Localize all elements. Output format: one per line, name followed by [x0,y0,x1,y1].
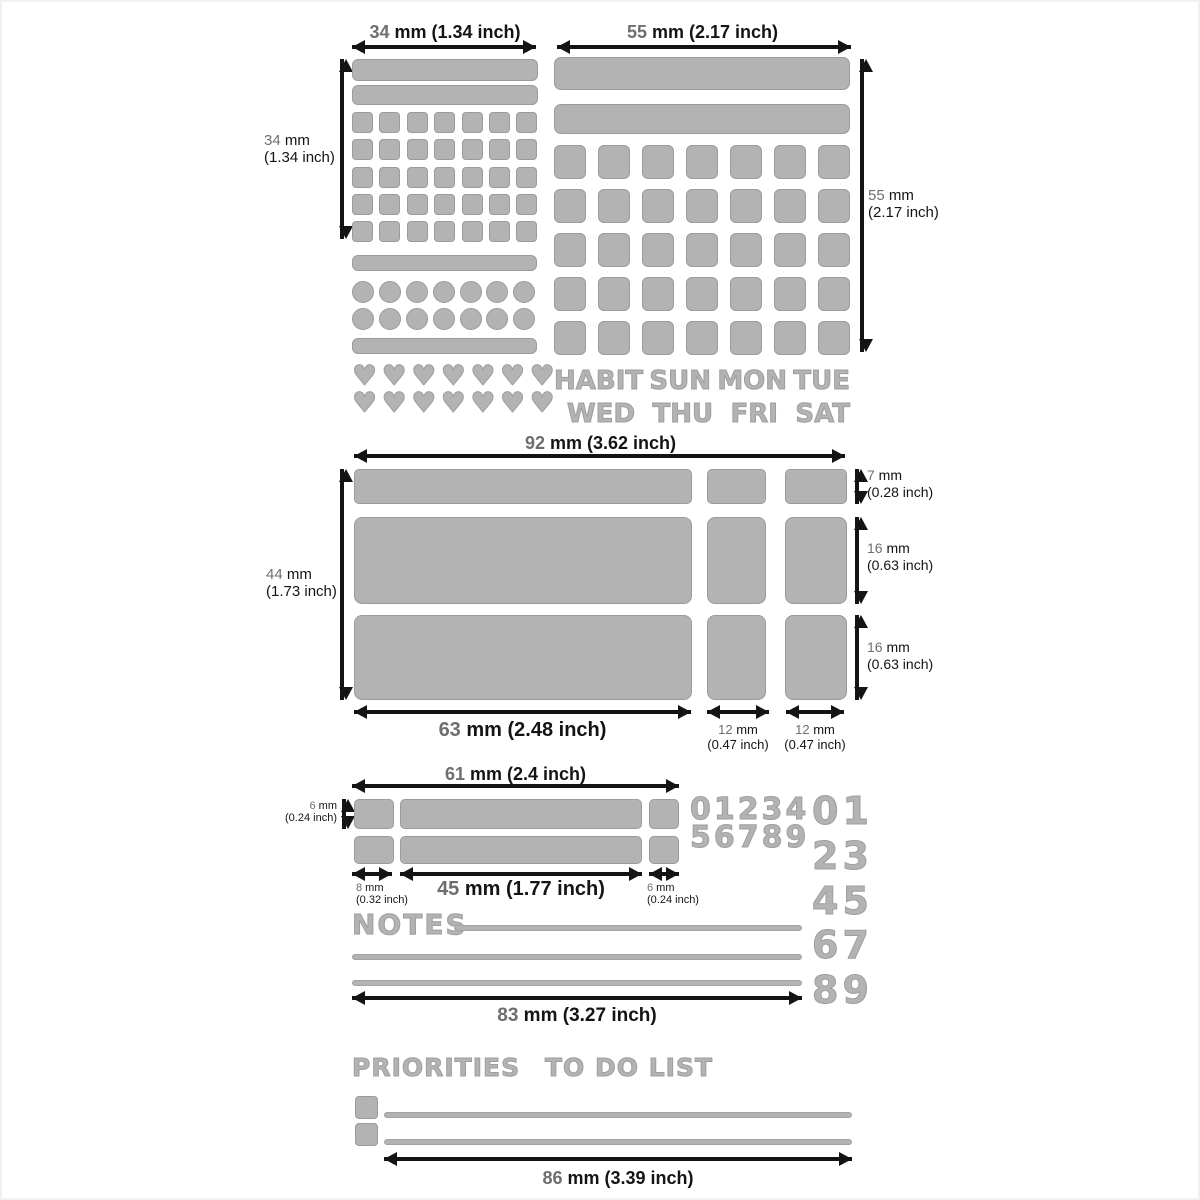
square-sticker [730,233,762,267]
heart-sticker-row: ♥♥♥♥♥♥♥ [352,389,538,416]
square-sticker [379,221,400,242]
dim-value: 34 [264,132,281,149]
square-sticker [407,194,428,215]
square-sticker [407,221,428,242]
dim-label-topleft-height: 34 mm (1.34 inch) [264,133,335,166]
square-sticker [642,277,674,311]
circle-sticker [460,281,482,303]
dim-label-83mm: 83 mm (3.27 inch) [352,1005,802,1027]
dim-label-45mm: 45 mm (1.77 inch) [400,878,642,901]
square-sticker [489,194,510,215]
square-sticker [489,167,510,188]
sticker-bar [554,104,850,134]
square-sticker [554,233,586,267]
notes-label: NOTES [352,908,468,941]
digits-row-23: 23 [812,834,873,879]
dim-unit: mm [883,639,910,655]
small-squares-grid [352,112,538,242]
dim-line2: (0.63 inch) [867,557,933,574]
dim-unit: mm (1.34 inch) [389,22,520,42]
dim-unit: mm [362,882,383,894]
wide-sticker-row1 [354,469,692,504]
circle-sticker [460,308,482,330]
dim-value: 61 [445,764,465,784]
square-sticker [407,112,428,133]
dim-label-6mm-right: 6 mm (0.24 inch) [647,882,699,906]
square-sticker [434,112,455,133]
day-labels-row1: HABIT SUN MON TUE [554,368,850,394]
small-sticker-row3-col1 [707,615,766,700]
small-sticker-row2-col2 [785,517,847,604]
width-arrow-45mm [400,872,642,876]
large-number-stickers: 01 23 45 67 89 [812,789,873,1013]
small-sticker-row1-col1 [707,469,766,504]
sticker-bar [554,57,850,90]
topleft-sticker-block: ♥♥♥♥♥♥♥♥♥♥♥♥♥♥ [352,59,538,416]
circle-stickers-grid [352,281,538,330]
square-sticker [774,233,806,267]
circle-sticker [379,281,401,303]
square-sticker [642,321,674,355]
header-bar-row1 [400,799,642,829]
dim-unit: mm [885,187,914,204]
square-sticker [516,194,537,215]
dim-unit: mm [283,566,312,583]
circle-sticker [352,281,374,303]
circle-sticker [352,308,374,330]
dim-value: 44 [266,566,283,583]
dim-line2: (0.63 inch) [867,656,933,673]
square-sticker [598,189,630,223]
dim-value: 34 [369,22,389,42]
planner-sticker-dimensions-diagram: 34 mm (1.34 inch) 34 mm (1.34 inch) ♥♥♥♥… [0,0,1200,1200]
square-sticker [554,321,586,355]
circle-sticker [486,308,508,330]
square-sticker [516,221,537,242]
dim-value: 16 [867,639,883,655]
width-arrow-topright [557,45,851,49]
dim-label-topright-height: 55 mm (2.17 inch) [868,188,939,221]
dim-unit: mm (2.17 inch) [647,22,778,42]
circle-sticker [406,281,428,303]
dim-line2: (0.47 inch) [697,737,779,752]
square-sticker [818,233,850,267]
word-habit: HABIT [554,368,643,394]
heart-stickers: ♥♥♥♥♥♥♥♥♥♥♥♥♥♥ [352,362,538,416]
dim-value: 12 [718,722,732,737]
square-sticker [379,139,400,160]
dim-line2: (1.73 inch) [266,584,337,601]
square-sticker [730,277,762,311]
square-sticker [489,112,510,133]
square-sticker [379,112,400,133]
dim-line2: (0.47 inch) [774,737,856,752]
square-sticker [379,194,400,215]
row2-height-arrow [855,517,859,604]
dim-unit: mm [875,467,902,483]
dim-label-86mm: 86 mm (3.39 inch) [384,1168,852,1189]
digits-row-01: 01 [812,789,873,834]
dim-line1: 34 mm [264,133,335,150]
word-mon: MON [717,368,787,394]
dim-line1: 55 mm [868,188,939,205]
square-sticker [352,139,373,160]
dim-unit: mm (1.77 inch) [459,878,605,900]
word-wed: WED [567,401,635,427]
digits-row-89: 89 [812,968,873,1013]
dim-line2: (2.17 inch) [868,205,939,222]
digits-row-56789: 56789 [690,824,809,852]
square-sticker [730,189,762,223]
square-sticker [730,321,762,355]
square-sticker [516,167,537,188]
square-sticker [774,277,806,311]
dim-unit: mm (3.39 inch) [562,1168,693,1188]
digits-row-67: 67 [812,923,873,968]
dim-label-63mm: 63 mm (2.48 inch) [354,719,691,742]
square-sticker [489,221,510,242]
dim-label-row2: 16 mm (0.63 inch) [867,540,933,573]
circle-sticker [513,281,535,303]
large-squares-grid [554,145,850,355]
todo-line-1 [384,1112,852,1118]
square-sticker [434,194,455,215]
dim-line1: 12 mm [774,722,856,737]
row1-height-arrow [855,469,859,504]
dim-value: 7 [867,467,875,483]
dim-label-topright-width: 55 mm (2.17 inch) [554,22,851,43]
dim-line2: (0.24 inch) [647,894,699,906]
dim-value: 63 [439,719,461,741]
square-sticker [554,145,586,179]
dim-label-middle-width: 92 mm (3.62 inch) [354,433,847,454]
topright-sticker-block: HABIT SUN MON TUE WED THU FRI SAT [554,57,850,427]
small-sticker-row2-col1 [707,517,766,604]
width-arrow-63mm [354,710,691,714]
square-sticker [352,221,373,242]
square-sticker [774,145,806,179]
height-arrow-topright [860,59,864,352]
square-sticker [818,189,850,223]
square-sticker [352,112,373,133]
square-sticker [686,277,718,311]
priorities-label: PRIORITIES [352,1053,520,1082]
square-sticker [516,139,537,160]
square-sticker [642,145,674,179]
square-sticker [352,194,373,215]
digits-row-45: 45 [812,879,873,924]
dim-label-6mm-left: 6 mm (0.24 inch) [257,800,337,824]
square-sticker [462,194,483,215]
dim-line1: 16 mm [867,639,933,656]
day-labels-row2: WED THU FRI SAT [554,401,850,427]
dim-line1: 6 mm [257,800,337,812]
height-arrow-middle [340,469,344,700]
width-arrow-86mm [384,1157,852,1161]
wide-sticker-row2 [354,517,692,604]
dim-value: 16 [867,540,883,556]
header-bar-row2 [400,836,642,864]
square-sticker [598,233,630,267]
circle-sticker [486,281,508,303]
square-sticker [774,321,806,355]
width-arrow-61mm [352,784,679,788]
dim-unit: mm [810,722,835,737]
square-sticker [407,139,428,160]
height-arrow-topleft [340,59,344,239]
square-sticker [489,139,510,160]
wide-sticker-row3 [354,615,692,700]
circle-sticker [433,308,455,330]
note-line [454,925,802,931]
width-arrow-6mm-right [649,872,679,876]
sticker-bar [352,59,538,81]
square-sticker [686,145,718,179]
word-sat: SAT [795,401,850,427]
dim-label-12mm-col2: 12 mm (0.47 inch) [774,722,856,752]
width-arrow-8mm [352,872,392,876]
note-line [352,980,802,986]
header-square-right-row1 [649,799,679,829]
todo-line-2 [384,1139,852,1145]
header-square-left-row1 [354,799,394,829]
dim-label-middle-height: 44 mm (1.73 inch) [266,567,337,600]
width-arrow-12mm-col1 [707,710,769,714]
square-sticker [818,277,850,311]
square-sticker [686,233,718,267]
circle-sticker [433,281,455,303]
square-sticker [598,145,630,179]
square-sticker [818,321,850,355]
square-sticker [434,139,455,160]
dim-line2: (0.28 inch) [867,484,933,501]
square-sticker [774,189,806,223]
dim-unit: mm [883,540,910,556]
square-sticker [462,139,483,160]
small-sticker-row1-col2 [785,469,847,504]
word-thu: THU [652,401,713,427]
dim-value: 55 [868,187,885,204]
circle-sticker [406,308,428,330]
todo-list-label: TO DO LIST [545,1053,713,1082]
dim-line1: 7 mm [867,467,933,484]
width-arrow-middle [354,454,845,458]
dim-value: 83 [497,1005,518,1026]
word-sun: SUN [649,368,711,394]
dim-line2: (1.34 inch) [264,150,335,167]
checkbox-sticker-1 [355,1096,378,1119]
square-sticker [642,233,674,267]
dim-value: 55 [627,22,647,42]
dim-label-row3: 16 mm (0.63 inch) [867,639,933,672]
small-number-stickers: 01234 56789 [690,796,809,852]
square-sticker [554,277,586,311]
dim-unit: mm [653,882,674,894]
dim-line1: 44 mm [266,567,337,584]
word-fri: FRI [731,401,778,427]
header-square-left-row2 [354,836,394,864]
square-sticker [407,167,428,188]
square-sticker [379,167,400,188]
heart-sticker-row: ♥♥♥♥♥♥♥ [352,362,538,389]
dim-label-row1: 7 mm (0.28 inch) [867,467,933,500]
dim-unit: mm (2.48 inch) [461,719,607,741]
dim-unit: mm (3.62 inch) [545,433,676,453]
circle-sticker [379,308,401,330]
square-sticker [462,112,483,133]
square-sticker [686,189,718,223]
dim-line1: 16 mm [867,540,933,557]
sticker-bar [352,255,537,271]
dim-value: 86 [542,1168,562,1188]
dim-label-61mm: 61 mm (2.4 inch) [352,764,679,785]
dim-unit: mm [733,722,758,737]
square-sticker [554,189,586,223]
word-tue: TUE [793,368,850,394]
width-arrow-12mm-col2 [786,710,844,714]
square-sticker [352,167,373,188]
dim-unit: mm (2.4 inch) [465,764,586,784]
dim-value: 92 [525,433,545,453]
sticker-bar [352,85,538,105]
square-sticker [686,321,718,355]
height-arrow-6mm [342,799,346,829]
row3-height-arrow [855,615,859,700]
dim-line1: 6 mm [647,882,699,894]
circle-sticker [513,308,535,330]
dim-label-12mm-col1: 12 mm (0.47 inch) [697,722,779,752]
dim-unit: mm (3.27 inch) [518,1005,656,1026]
note-line [352,954,802,960]
square-sticker [516,112,537,133]
small-sticker-row3-col2 [785,615,847,700]
square-sticker [598,321,630,355]
square-sticker [462,221,483,242]
header-square-right-row2 [649,836,679,864]
dim-line1: 12 mm [697,722,779,737]
dim-value: 12 [795,722,809,737]
dim-unit: mm [316,800,337,812]
dim-line2: (0.24 inch) [257,812,337,824]
square-sticker [598,277,630,311]
square-sticker [434,167,455,188]
square-sticker [462,167,483,188]
dim-label-topleft-width: 34 mm (1.34 inch) [352,22,538,43]
dim-value: 45 [437,878,459,900]
dim-unit: mm [281,132,310,149]
sticker-bar [352,338,537,354]
square-sticker [818,145,850,179]
width-arrow-topleft [352,45,536,49]
square-sticker [642,189,674,223]
width-arrow-83mm [352,996,802,1000]
checkbox-sticker-2 [355,1123,378,1146]
square-sticker [730,145,762,179]
square-sticker [434,221,455,242]
